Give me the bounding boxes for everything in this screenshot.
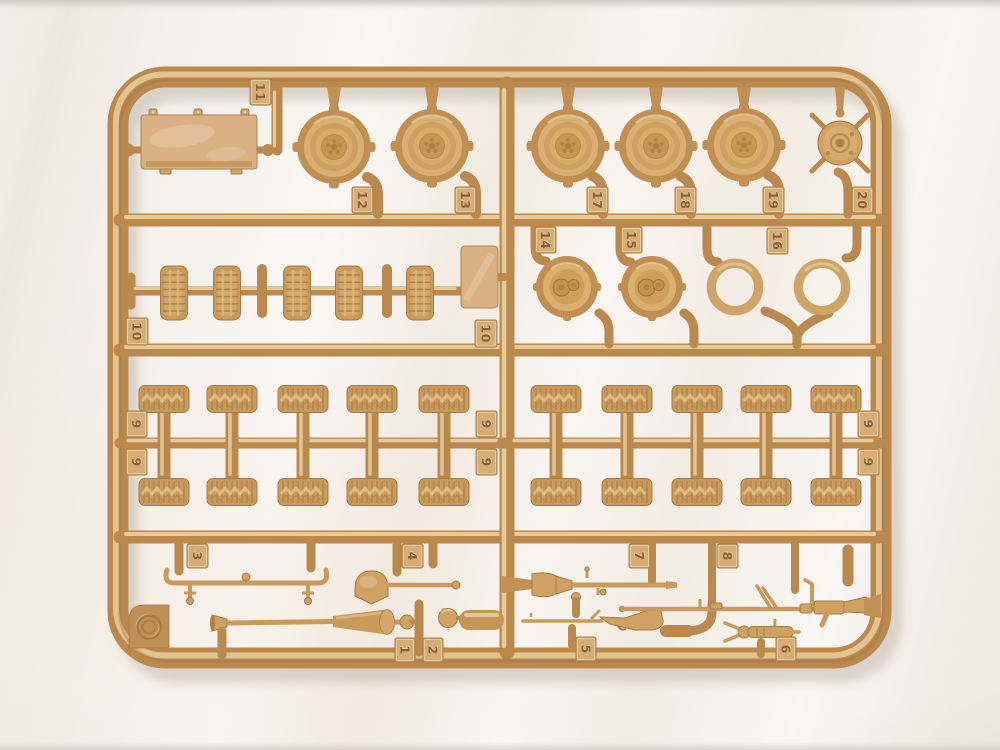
svg-text:1: 1	[397, 645, 412, 654]
svg-text:8: 8	[720, 551, 735, 560]
svg-text:9: 9	[479, 457, 494, 466]
part-tire-9	[207, 386, 257, 413]
svg-text:14: 14	[538, 231, 553, 249]
part-box-11	[122, 109, 275, 174]
svg-text:16: 16	[770, 232, 785, 250]
svg-text:5: 5	[578, 644, 593, 653]
part-tire-9	[602, 479, 652, 506]
svg-text:6: 6	[778, 644, 793, 653]
band3-post	[442, 405, 444, 481]
part-tire-10	[407, 266, 434, 320]
part-tire-9	[672, 479, 722, 506]
band3-post	[554, 405, 556, 481]
band3-post	[230, 405, 232, 481]
tag-18: 18 18	[675, 187, 696, 213]
tag-9: 9 9	[858, 449, 879, 475]
part-tire-9	[531, 386, 581, 413]
sprue-corner-mark	[129, 605, 169, 648]
tag-14: 14 14	[535, 227, 556, 253]
svg-text:9: 9	[479, 419, 494, 428]
band3-post	[625, 405, 627, 481]
tag-19: 19 19	[763, 187, 784, 213]
tag-9: 9 9	[476, 411, 497, 437]
tag-10-right: 10 10	[475, 320, 497, 347]
part-shovel-4	[355, 571, 460, 604]
svg-text:20: 20	[855, 191, 870, 209]
svg-text:13: 13	[458, 191, 473, 209]
band4-right-posts	[652, 544, 848, 602]
tag-9: 9 9	[126, 449, 147, 475]
part-wheel-14	[533, 256, 601, 321]
tag-1: 1 1	[395, 638, 415, 662]
part-tire-9	[278, 479, 328, 506]
band3-post	[834, 405, 836, 481]
band3-post	[695, 405, 697, 481]
part-tire-9	[278, 386, 328, 413]
band3-post	[370, 405, 372, 481]
part-plate-10	[461, 246, 498, 308]
svg-text:15: 15	[624, 231, 639, 249]
tag-5: 5 5	[576, 637, 596, 661]
part-tire-9	[531, 479, 581, 506]
tag-6: 6 6	[776, 637, 796, 661]
part-tire-9	[347, 479, 397, 506]
svg-text:9: 9	[861, 419, 876, 428]
part-tire-10	[161, 266, 188, 320]
band3-post	[162, 405, 164, 481]
tag-9: 9 9	[476, 449, 497, 475]
part-tire-9	[811, 386, 861, 413]
tag-15: 15 15	[621, 227, 642, 253]
svg-text:10: 10	[478, 324, 493, 342]
part-tire-9	[419, 479, 469, 506]
part-tire-9	[139, 386, 189, 413]
tag-7: 7 7	[629, 544, 650, 568]
part-tire-9	[419, 386, 469, 413]
tag-2: 2 2	[423, 638, 443, 662]
part-tow-rod-3	[166, 570, 327, 605]
tag-9: 9 9	[858, 411, 879, 437]
band3-post	[301, 405, 303, 481]
svg-text:4: 4	[405, 551, 420, 560]
part-tire-9	[139, 479, 189, 506]
part-tire-10	[336, 266, 363, 320]
band4-left-posts	[179, 544, 433, 572]
part-ring-16a	[707, 259, 763, 315]
part-rifle-5	[523, 589, 712, 645]
part-cap-2	[439, 608, 505, 630]
svg-text:9: 9	[129, 419, 144, 428]
tag-3: 3 3	[187, 544, 208, 568]
part-tire-10	[214, 266, 241, 320]
tag-8: 8 8	[717, 544, 738, 568]
tag-12: 12 12	[352, 187, 373, 213]
part-tire-9	[207, 479, 257, 506]
part-tire-9	[347, 386, 397, 413]
part-tire-10	[284, 266, 311, 320]
svg-text:10: 10	[129, 322, 144, 340]
svg-text:19: 19	[766, 191, 781, 209]
tag-17: 17 17	[587, 187, 608, 213]
runner-11	[275, 88, 278, 150]
part-tire-9	[672, 386, 722, 413]
part-tire-9	[741, 386, 791, 413]
svg-text:9: 9	[129, 457, 144, 466]
tag-16: 16 16	[767, 228, 788, 254]
part-tire-9	[811, 479, 861, 506]
tag-11: 11 11	[250, 79, 271, 105]
sprue-photo: 11 11 12 12 13 13 17 17 18 18 19 19	[0, 0, 1000, 750]
svg-text:7: 7	[632, 551, 647, 560]
svg-text:12: 12	[355, 191, 370, 209]
tag-9: 9 9	[126, 411, 147, 437]
tag-10-left: 10 10	[126, 318, 148, 345]
svg-text:2: 2	[425, 645, 440, 654]
tag-13: 13 13	[455, 187, 476, 213]
part-cleaning-rod-1	[210, 604, 419, 655]
svg-text:9: 9	[861, 457, 876, 466]
part-tire-9	[741, 479, 791, 506]
part-tire-9	[602, 386, 652, 413]
svg-text:11: 11	[253, 83, 268, 101]
tag-20: 20 20	[852, 187, 873, 213]
part-ring-16b	[794, 259, 850, 315]
svg-text:17: 17	[590, 191, 605, 209]
svg-text:3: 3	[190, 551, 205, 560]
svg-text:18: 18	[678, 191, 693, 209]
tag-4: 4 4	[402, 544, 423, 568]
band3-post	[764, 405, 766, 481]
